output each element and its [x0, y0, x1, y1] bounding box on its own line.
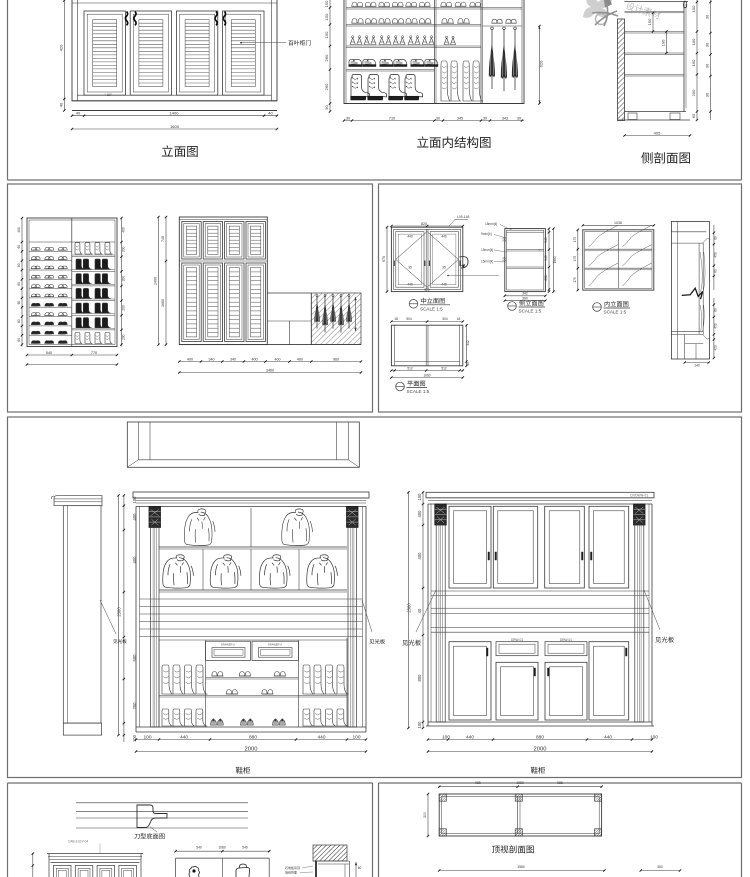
svg-text:175: 175: [573, 237, 577, 243]
svg-text:1400: 1400: [170, 111, 180, 116]
svg-text:340: 340: [230, 357, 236, 361]
svg-text:985: 985: [475, 781, 481, 785]
svg-text:1980: 1980: [516, 781, 524, 785]
svg-text:540: 540: [242, 846, 248, 850]
svg-text:30: 30: [705, 14, 710, 19]
svg-text:710: 710: [389, 116, 395, 120]
svg-text:18mm[k]: 18mm[k]: [485, 222, 497, 226]
svg-text:100: 100: [352, 734, 360, 740]
svg-text:740: 740: [161, 236, 165, 242]
svg-text:545: 545: [544, 237, 548, 243]
svg-text:石膏板吊顶: 石膏板吊顶: [285, 865, 300, 870]
svg-text:920: 920: [424, 288, 430, 292]
svg-text:400: 400: [417, 552, 422, 560]
svg-text:260: 260: [324, 83, 329, 90]
svg-text:345: 345: [457, 116, 463, 120]
svg-text:200: 200: [122, 334, 126, 340]
svg-text:300: 300: [657, 865, 663, 869]
svg-text:35: 35: [442, 266, 446, 270]
svg-text:820: 820: [421, 222, 427, 226]
svg-text:960: 960: [333, 357, 339, 361]
svg-text:200: 200: [122, 276, 126, 282]
svg-text:30: 30: [705, 92, 710, 97]
svg-text:800: 800: [417, 674, 422, 682]
svg-text:90: 90: [324, 105, 329, 110]
svg-text:60: 60: [17, 319, 21, 323]
svg-text:440: 440: [407, 235, 413, 239]
svg-text:SCALE 1:5: SCALE 1:5: [407, 389, 430, 394]
svg-text:DRAWER-A: DRAWER-A: [221, 643, 235, 647]
svg-text:880: 880: [249, 734, 257, 740]
svg-text:440: 440: [466, 734, 474, 740]
svg-text:1660: 1660: [161, 299, 165, 307]
svg-text:100: 100: [650, 734, 658, 740]
svg-text:343: 343: [502, 116, 508, 120]
svg-text:1600: 1600: [170, 124, 180, 129]
svg-text:35: 35: [408, 266, 412, 270]
svg-text:450: 450: [713, 252, 717, 258]
svg-text:1060: 1060: [423, 373, 430, 377]
svg-text:200: 200: [122, 305, 126, 311]
svg-text:2000: 2000: [245, 746, 258, 752]
svg-text:40: 40: [417, 608, 422, 613]
svg-text:DRW-01: DRW-01: [511, 638, 523, 642]
svg-text:100: 100: [442, 734, 450, 740]
svg-text:40: 40: [76, 111, 81, 116]
svg-text:60: 60: [17, 338, 21, 342]
svg-text:1980: 1980: [517, 865, 525, 869]
svg-text:18: 18: [457, 317, 461, 321]
svg-text:420: 420: [59, 44, 64, 51]
svg-text:504: 504: [442, 317, 448, 321]
svg-text:18: 18: [394, 317, 398, 321]
svg-text:985: 985: [557, 781, 563, 785]
svg-text:40: 40: [59, 102, 64, 107]
svg-text:400: 400: [252, 357, 258, 361]
svg-text:545: 545: [544, 255, 548, 261]
svg-text:1036: 1036: [614, 221, 622, 225]
svg-text:100: 100: [417, 721, 422, 729]
svg-text:440: 440: [180, 734, 188, 740]
svg-text:100: 100: [417, 493, 422, 501]
svg-text:60: 60: [713, 308, 717, 312]
svg-text:30: 30: [705, 63, 710, 68]
svg-text:60: 60: [17, 282, 21, 286]
svg-text:墙纸饰面: 墙纸饰面: [285, 870, 297, 875]
svg-text:150: 150: [324, 13, 329, 20]
svg-text:300: 300: [423, 812, 427, 818]
svg-text:540: 540: [196, 846, 202, 850]
svg-text:200: 200: [691, 89, 696, 96]
svg-text:400: 400: [122, 227, 126, 233]
svg-text:540: 540: [46, 351, 52, 355]
svg-text:400: 400: [187, 357, 193, 361]
svg-text:L05-148: L05-148: [457, 215, 470, 219]
svg-text:420: 420: [713, 345, 717, 351]
svg-text:60: 60: [713, 236, 717, 240]
svg-text:150: 150: [324, 31, 329, 38]
svg-text:60: 60: [17, 245, 21, 249]
svg-text:2300: 2300: [406, 603, 411, 613]
svg-text:100: 100: [143, 734, 151, 740]
svg-text:18: 18: [466, 362, 470, 366]
svg-text:450: 450: [713, 323, 717, 329]
svg-text:620: 620: [539, 60, 544, 67]
svg-text:30: 30: [436, 116, 440, 120]
svg-text:260: 260: [324, 54, 329, 61]
svg-text:2000: 2000: [534, 746, 547, 752]
svg-text:DRAWER-A: DRAWER-A: [268, 643, 282, 647]
svg-text:400: 400: [417, 510, 422, 518]
svg-text:CROWN-01: CROWN-01: [630, 494, 648, 498]
svg-text:440: 440: [604, 734, 612, 740]
svg-text:60: 60: [17, 301, 21, 305]
svg-text:400: 400: [275, 357, 281, 361]
svg-text:30: 30: [346, 116, 350, 120]
svg-text:DRW-01: DRW-01: [560, 638, 572, 642]
svg-text:504: 504: [406, 317, 412, 321]
svg-text:440: 440: [441, 283, 447, 287]
svg-text:2300: 2300: [117, 607, 122, 617]
svg-text:512: 512: [407, 366, 413, 370]
svg-text:440: 440: [441, 235, 447, 239]
svg-text:40: 40: [268, 111, 273, 116]
svg-text:970: 970: [382, 256, 386, 262]
svg-text:3460: 3460: [266, 368, 274, 372]
svg-text:400: 400: [17, 227, 21, 233]
svg-text:60: 60: [691, 113, 696, 118]
svg-text:680: 680: [544, 275, 548, 281]
svg-text:1890: 1890: [553, 256, 557, 263]
svg-text:SCALE 1:5: SCALE 1:5: [519, 309, 542, 314]
svg-text:60: 60: [358, 866, 362, 870]
svg-text:400: 400: [297, 357, 303, 361]
svg-text:405: 405: [654, 130, 661, 135]
svg-text:200: 200: [122, 246, 126, 252]
svg-text:30: 30: [517, 116, 521, 120]
svg-text:30: 30: [483, 116, 487, 120]
svg-text:15mm[k]: 15mm[k]: [481, 260, 493, 264]
svg-text:30: 30: [705, 42, 710, 47]
svg-text:440: 440: [407, 283, 413, 287]
svg-text:60: 60: [17, 263, 21, 267]
svg-text:880: 880: [536, 734, 544, 740]
svg-text:150: 150: [647, 18, 652, 25]
svg-text:9mm[k]: 9mm[k]: [481, 232, 492, 236]
svg-text:360: 360: [522, 296, 528, 300]
svg-text:80: 80: [107, 93, 111, 97]
svg-text:150: 150: [691, 5, 696, 12]
svg-text:175: 175: [573, 256, 577, 262]
svg-text:342: 342: [466, 340, 470, 346]
svg-text:190: 190: [691, 59, 696, 66]
svg-text:340: 340: [209, 357, 215, 361]
svg-text:CAB-ELEV-04: CAB-ELEV-04: [68, 840, 88, 844]
svg-text:190: 190: [691, 38, 696, 45]
svg-text:175: 175: [573, 277, 577, 283]
svg-text:60: 60: [713, 269, 717, 273]
svg-text:190: 190: [661, 39, 666, 46]
svg-text:1080: 1080: [218, 846, 226, 850]
svg-text:140: 140: [694, 364, 700, 368]
svg-text:SCALE 1:5: SCALE 1:5: [604, 310, 627, 315]
svg-text:15mm[k]: 15mm[k]: [481, 248, 493, 252]
svg-text:100: 100: [132, 734, 137, 742]
svg-text:150: 150: [324, 0, 329, 7]
svg-text:440: 440: [317, 734, 325, 740]
svg-text:SCALE 1:5: SCALE 1:5: [420, 307, 443, 312]
svg-text:2400: 2400: [154, 277, 158, 285]
svg-text:770: 770: [91, 351, 97, 355]
svg-text:342: 342: [522, 292, 528, 296]
svg-text:512: 512: [441, 366, 447, 370]
